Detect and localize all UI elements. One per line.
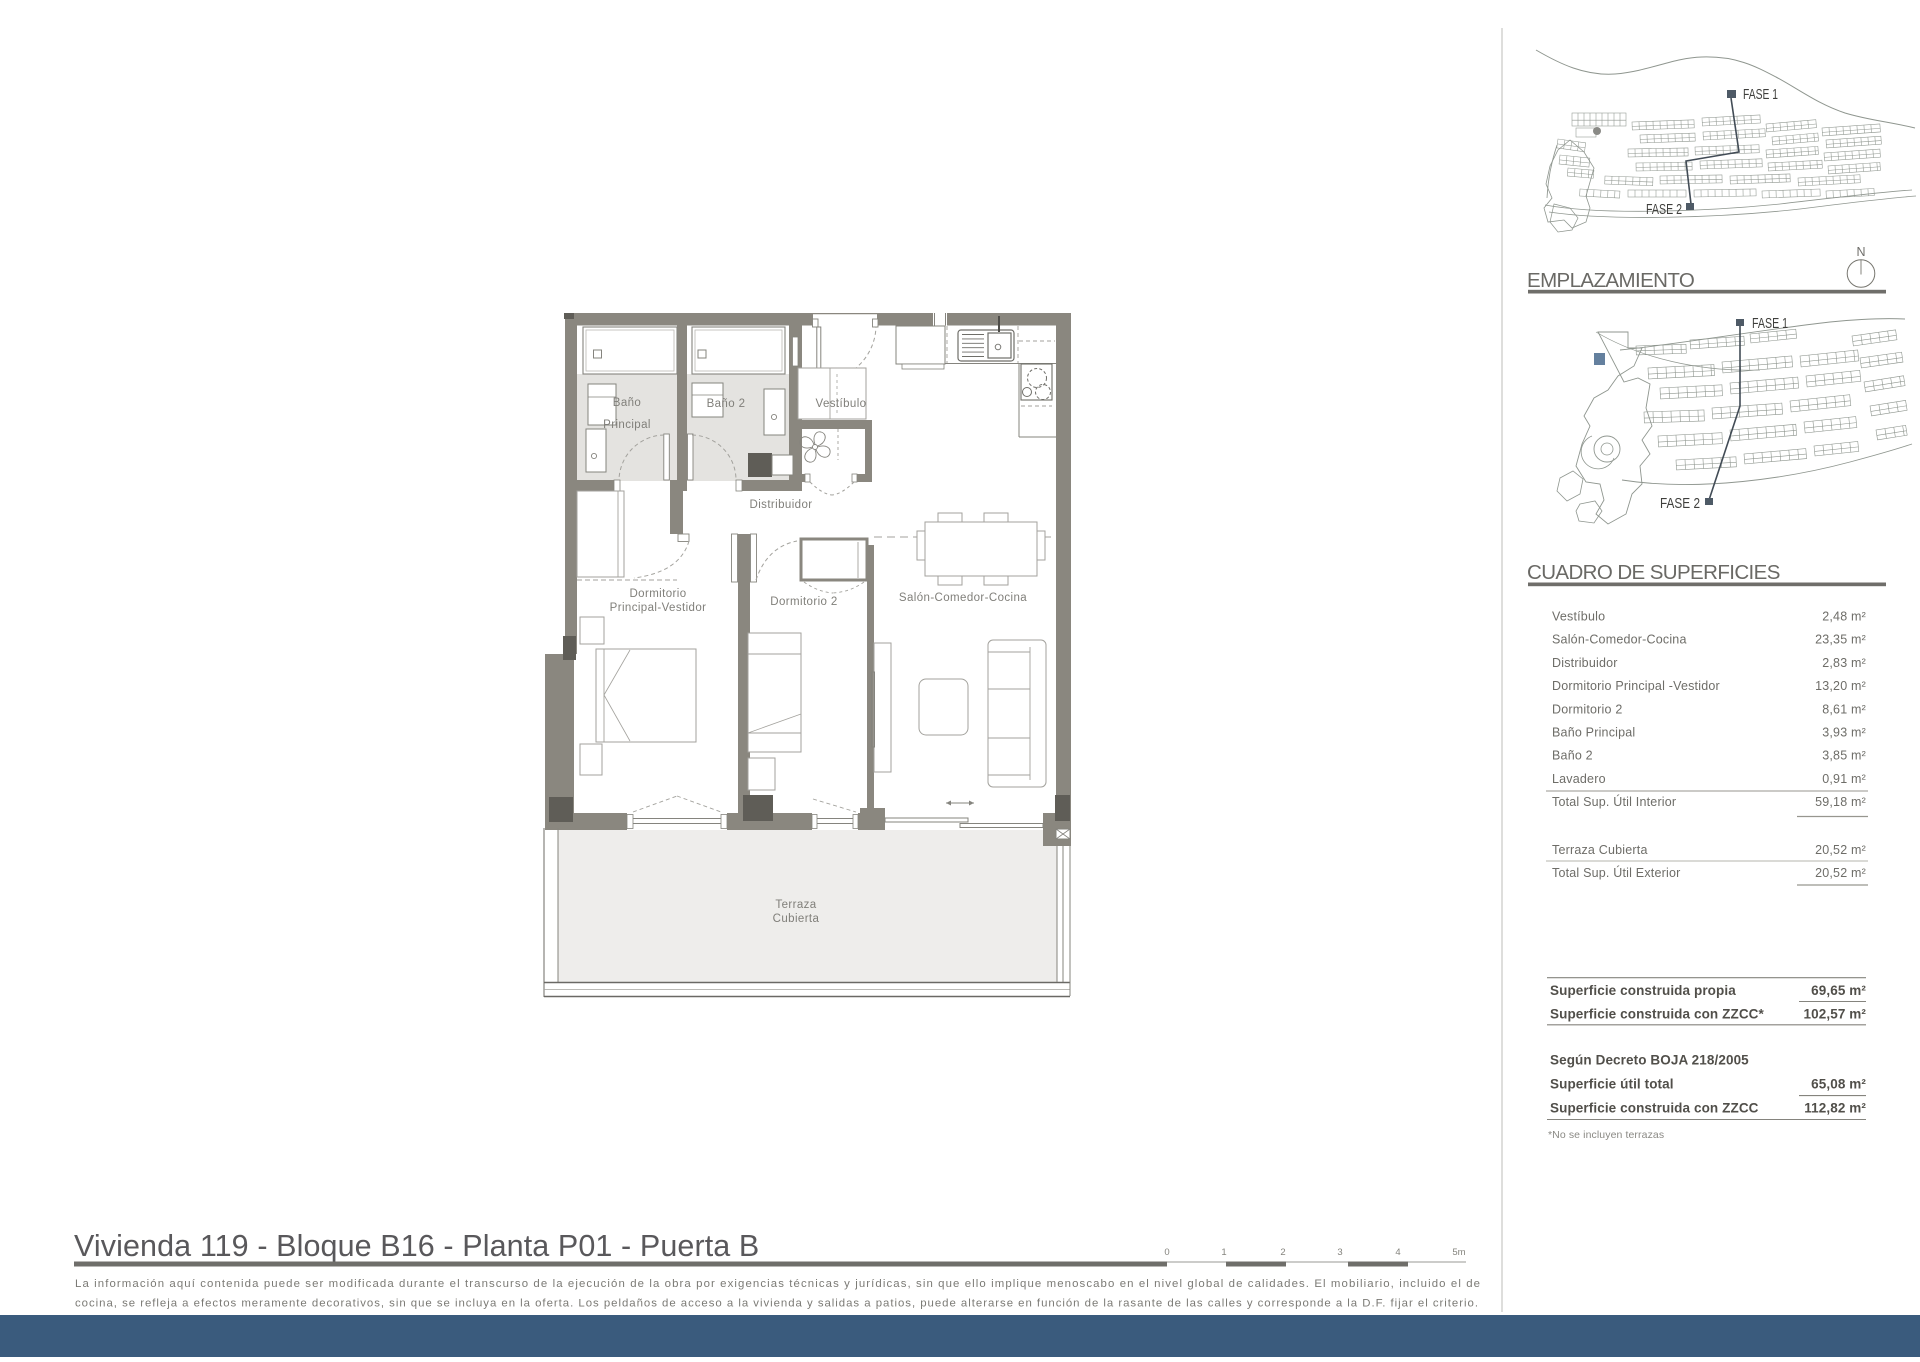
svg-text:8,61 m²: 8,61 m² bbox=[1822, 702, 1866, 716]
svg-text:Principal: Principal bbox=[603, 419, 651, 431]
svg-text:23,35 m²: 23,35 m² bbox=[1815, 633, 1866, 647]
svg-text:Vestíbulo: Vestíbulo bbox=[816, 398, 867, 410]
svg-text:112,82 m²: 112,82 m² bbox=[1804, 1101, 1866, 1116]
svg-text:102,57 m²: 102,57 m² bbox=[1804, 1007, 1867, 1022]
svg-text:cocina, se refleja a efectos m: cocina, se refleja a efectos meramente d… bbox=[75, 1298, 1478, 1310]
svg-text:Dormitorio 2: Dormitorio 2 bbox=[1552, 702, 1622, 716]
svg-text:Lavadero: Lavadero bbox=[1552, 772, 1606, 786]
svg-text:Total Sup. Útil Exterior: Total Sup. Útil Exterior bbox=[1552, 865, 1680, 880]
svg-text:20,52 m²: 20,52 m² bbox=[1815, 866, 1866, 880]
svg-text:Baño 2: Baño 2 bbox=[1552, 749, 1593, 763]
svg-text:Distribuidor: Distribuidor bbox=[750, 499, 813, 511]
svg-text:2: 2 bbox=[1280, 1247, 1285, 1258]
svg-text:Baño Principal: Baño Principal bbox=[1552, 726, 1635, 740]
svg-text:Vestíbulo: Vestíbulo bbox=[1552, 610, 1605, 624]
svg-text:0,91 m²: 0,91 m² bbox=[1822, 772, 1866, 786]
svg-text:Superficie construida con ZZCC: Superficie construida con ZZCC* bbox=[1550, 1007, 1765, 1022]
svg-text:Dormitorio 2: Dormitorio 2 bbox=[770, 596, 837, 608]
svg-text:Baño 2: Baño 2 bbox=[707, 398, 746, 410]
svg-text:2,48 m²: 2,48 m² bbox=[1822, 610, 1866, 624]
svg-text:3,93 m²: 3,93 m² bbox=[1822, 726, 1866, 740]
svg-text:65,08 m²: 65,08 m² bbox=[1811, 1077, 1866, 1092]
svg-text:Cubierta: Cubierta bbox=[773, 913, 820, 925]
svg-text:FASE 2: FASE 2 bbox=[1646, 201, 1682, 218]
svg-text:1: 1 bbox=[1221, 1247, 1226, 1258]
svg-text:Principal-Vestidor: Principal-Vestidor bbox=[610, 602, 707, 614]
svg-text:FASE 1: FASE 1 bbox=[1743, 86, 1778, 103]
svg-text:Total Sup. Útil Interior: Total Sup. Útil Interior bbox=[1552, 794, 1676, 809]
svg-text:Baño: Baño bbox=[613, 397, 641, 409]
svg-text:Salón-Comedor-Cocina: Salón-Comedor-Cocina bbox=[1552, 633, 1687, 647]
svg-text:Superficie construida propia: Superficie construida propia bbox=[1550, 983, 1736, 998]
svg-text:Terraza Cubierta: Terraza Cubierta bbox=[1552, 843, 1648, 857]
svg-text:13,20 m²: 13,20 m² bbox=[1815, 679, 1866, 693]
svg-text:59,18 m²: 59,18 m² bbox=[1815, 795, 1866, 809]
svg-text:Superficie construida con ZZCC: Superficie construida con ZZCC bbox=[1550, 1101, 1759, 1116]
svg-text:3,85 m²: 3,85 m² bbox=[1822, 749, 1866, 763]
svg-text:Dormitorio Principal -Vestidor: Dormitorio Principal -Vestidor bbox=[1552, 679, 1720, 693]
svg-text:N: N bbox=[1856, 245, 1865, 259]
svg-text:EMPLAZAMIENTO: EMPLAZAMIENTO bbox=[1527, 269, 1694, 292]
svg-text:Distribuidor: Distribuidor bbox=[1552, 656, 1618, 670]
svg-text:FASE 1: FASE 1 bbox=[1752, 315, 1788, 332]
svg-text:3: 3 bbox=[1337, 1247, 1342, 1258]
svg-text:Según Decreto BOJA 218/2005: Según Decreto BOJA 218/2005 bbox=[1550, 1053, 1749, 1068]
svg-text:5m: 5m bbox=[1452, 1247, 1465, 1258]
svg-text:2,83 m²: 2,83 m² bbox=[1822, 656, 1866, 670]
svg-text:CUADRO DE SUPERFICIES: CUADRO DE SUPERFICIES bbox=[1527, 561, 1780, 584]
svg-text:69,65 m²: 69,65 m² bbox=[1811, 983, 1866, 998]
svg-text:Superficie útil total: Superficie útil total bbox=[1550, 1077, 1674, 1092]
svg-text:Vivienda 119 - Bloque B16 - Pl: Vivienda 119 - Bloque B16 - Planta P01 -… bbox=[74, 1229, 759, 1263]
svg-text:Terraza: Terraza bbox=[775, 899, 816, 911]
svg-text:Salón-Comedor-Cocina: Salón-Comedor-Cocina bbox=[899, 592, 1027, 604]
svg-text:FASE 2: FASE 2 bbox=[1660, 495, 1700, 512]
svg-text:0: 0 bbox=[1164, 1247, 1169, 1258]
svg-text:La información aquí contenida: La información aquí contenida puede ser … bbox=[75, 1278, 1480, 1290]
svg-text:*No se incluyen terrazas: *No se incluyen terrazas bbox=[1548, 1129, 1664, 1141]
svg-text:Dormitorio: Dormitorio bbox=[629, 588, 686, 600]
svg-text:4: 4 bbox=[1395, 1247, 1400, 1258]
svg-text:20,52 m²: 20,52 m² bbox=[1815, 843, 1866, 857]
